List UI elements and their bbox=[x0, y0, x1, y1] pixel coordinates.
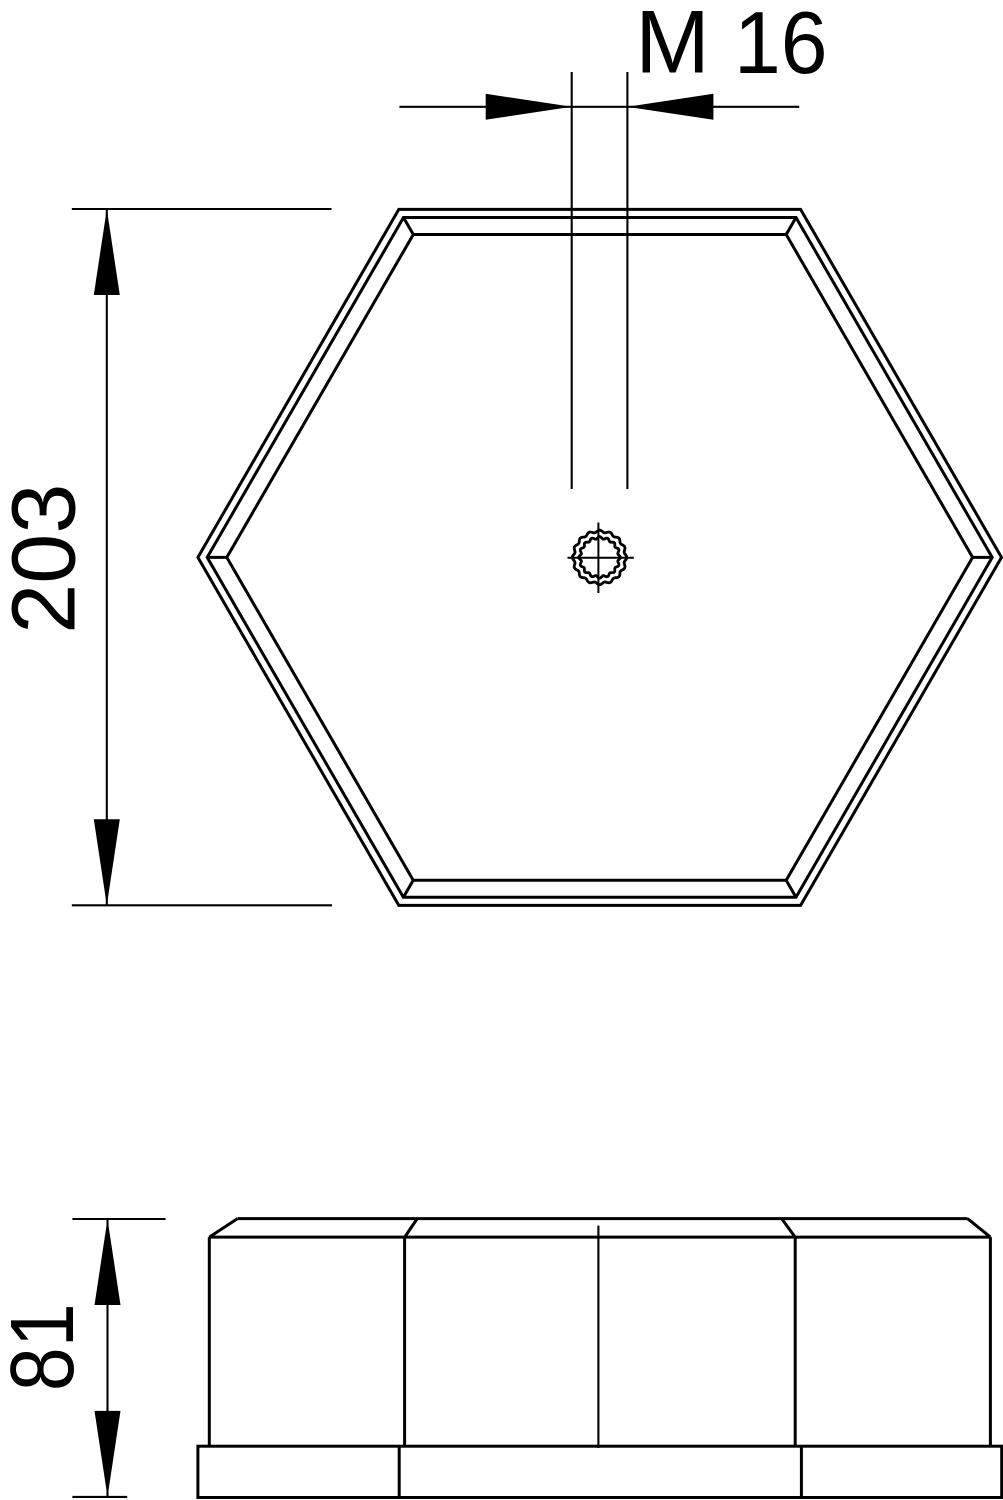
svg-text:16: 16 bbox=[734, 0, 828, 92]
svg-text:203: 203 bbox=[0, 484, 94, 634]
svg-text:M: M bbox=[635, 0, 710, 92]
svg-text:81: 81 bbox=[0, 1303, 93, 1391]
